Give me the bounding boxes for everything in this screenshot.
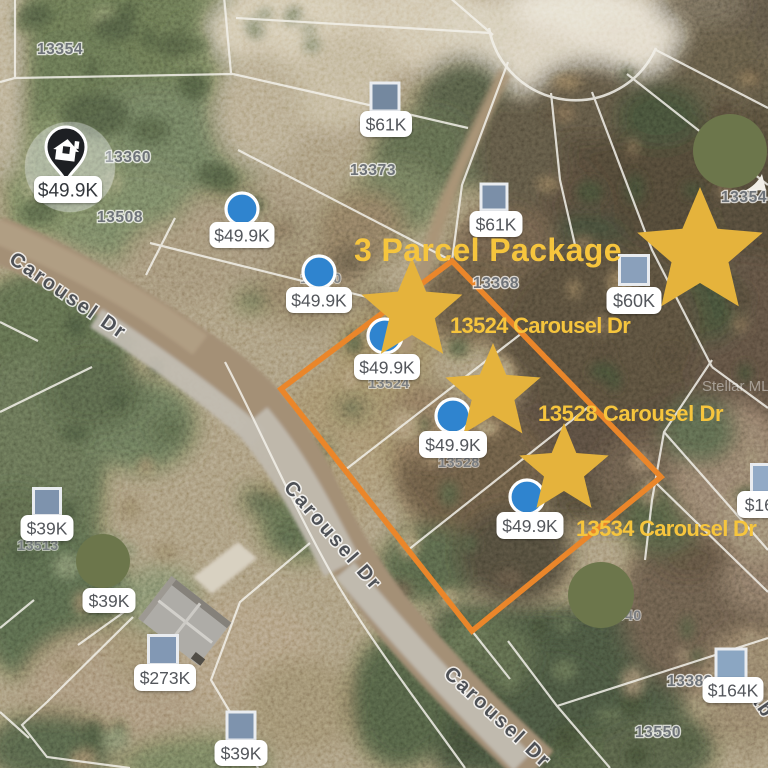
- svg-text:Stellar MLS: Stellar MLS: [702, 378, 768, 395]
- svg-text:$60K: $60K: [613, 291, 655, 311]
- svg-text:$39K: $39K: [27, 518, 68, 538]
- svg-text:$49.9K: $49.9K: [214, 225, 270, 245]
- svg-text:13373: 13373: [350, 162, 396, 179]
- svg-text:$169K: $169K: [745, 495, 768, 515]
- svg-text:$39K: $39K: [89, 591, 130, 611]
- svg-text:$39K: $39K: [221, 743, 262, 763]
- svg-text:13528 Carousel Dr: 13528 Carousel Dr: [538, 401, 724, 426]
- svg-text:$49.9K: $49.9K: [291, 290, 347, 310]
- svg-text:13550: 13550: [635, 724, 681, 741]
- svg-text:13534 Carousel Dr: 13534 Carousel Dr: [576, 516, 757, 541]
- svg-text:3 Parcel Package: 3 Parcel Package: [354, 232, 622, 268]
- svg-text:13368: 13368: [473, 275, 519, 292]
- svg-text:$49.9K: $49.9K: [502, 516, 558, 536]
- svg-text:13354: 13354: [37, 41, 83, 58]
- svg-text:13508: 13508: [97, 209, 143, 226]
- svg-text:$49.9K: $49.9K: [359, 357, 415, 377]
- svg-text:$164K: $164K: [708, 680, 759, 700]
- svg-text:$273K: $273K: [140, 668, 191, 688]
- svg-text:$49.9K: $49.9K: [38, 180, 99, 201]
- svg-text:$49.9K: $49.9K: [425, 435, 481, 455]
- svg-text:13354: 13354: [721, 189, 767, 206]
- svg-text:$61K: $61K: [366, 114, 407, 134]
- svg-text:13524 Carousel Dr: 13524 Carousel Dr: [450, 313, 631, 338]
